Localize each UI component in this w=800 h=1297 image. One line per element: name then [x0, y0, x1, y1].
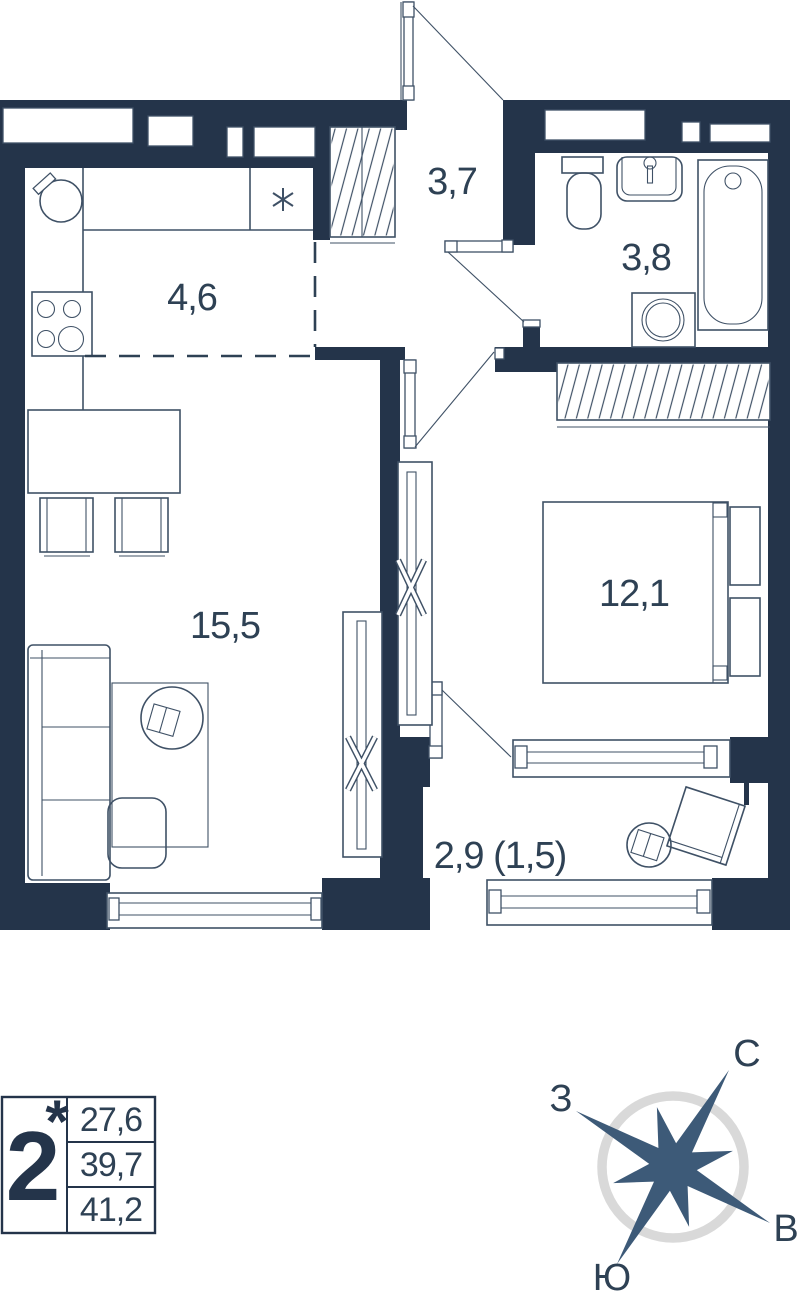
dining-table [28, 410, 180, 493]
compass-south-label: Ю [593, 1257, 631, 1297]
info-card: 2 * 27,6 39,7 41,2 [2, 1088, 155, 1233]
living-room-wardrobe [343, 612, 382, 857]
bedroom-wardrobe [398, 462, 432, 725]
compass-rose: С З В Ю [550, 1033, 799, 1297]
rug [112, 683, 208, 847]
bathroom-sink [617, 157, 682, 201]
hallway [330, 127, 395, 243]
floor-plan-page: 4,6 3,7 3,8 15,5 12,1 2,9 (1,5) 2 * 27,6… [0, 0, 800, 1297]
sofa [28, 645, 166, 880]
bedroom-door [404, 352, 494, 448]
balcony-window [487, 880, 712, 925]
bedroom-top-wardrobe [557, 363, 770, 427]
balcony-armchair [667, 787, 745, 865]
washing-machine [632, 293, 695, 347]
bedroom-balcony-window [513, 740, 730, 777]
bathtub [698, 160, 768, 330]
kitchen-sink [33, 173, 82, 222]
balcony-table [627, 823, 671, 867]
dining-chair [115, 498, 168, 556]
nightstand [730, 507, 760, 585]
dining-chair [40, 498, 93, 556]
kitchen-counter-asterisk [273, 188, 293, 211]
living-area-value: 27,6 [80, 1101, 142, 1139]
entrance-door [401, 2, 503, 100]
rooms-count-star: * [45, 1088, 69, 1155]
toilet [562, 157, 603, 229]
living-room-window [107, 893, 322, 928]
nightstand [730, 598, 760, 676]
kitchen-stove [32, 292, 92, 356]
room-label-kitchen: 4,6 [167, 277, 217, 319]
total-area-value: 41,2 [80, 1191, 142, 1229]
bathroom-door [445, 240, 524, 322]
hallway-wardrobe [330, 127, 395, 243]
room-label-living: 15,5 [190, 605, 260, 647]
compass-north-label: С [733, 1033, 760, 1075]
coffee-table [141, 687, 203, 749]
compass-west-label: З [550, 1078, 573, 1120]
room-label-hallway: 3,7 [427, 161, 477, 203]
compass-east-label: В [773, 1208, 798, 1250]
balcony-door [429, 682, 511, 758]
area-without-balcony-value: 39,7 [80, 1146, 142, 1184]
room-label-bathroom: 3,8 [621, 237, 671, 279]
room-label-bedroom: 12,1 [599, 573, 669, 615]
bedroom [398, 363, 770, 725]
kitchen [28, 168, 315, 556]
living-room [28, 612, 382, 880]
room-label-balcony: 2,9 (1,5) [434, 835, 567, 877]
balcony [627, 787, 745, 867]
floor-plan: 4,6 3,7 3,8 15,5 12,1 2,9 (1,5) 2 * 27,6… [0, 0, 800, 1297]
